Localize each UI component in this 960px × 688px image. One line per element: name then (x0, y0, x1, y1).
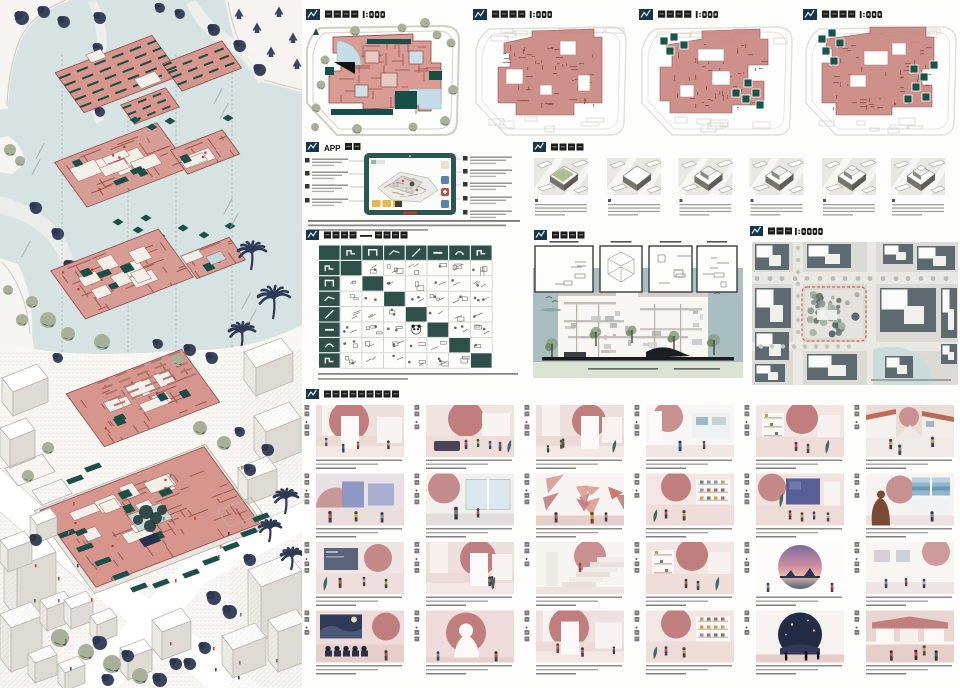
svg-text:APP: APP (324, 144, 341, 153)
